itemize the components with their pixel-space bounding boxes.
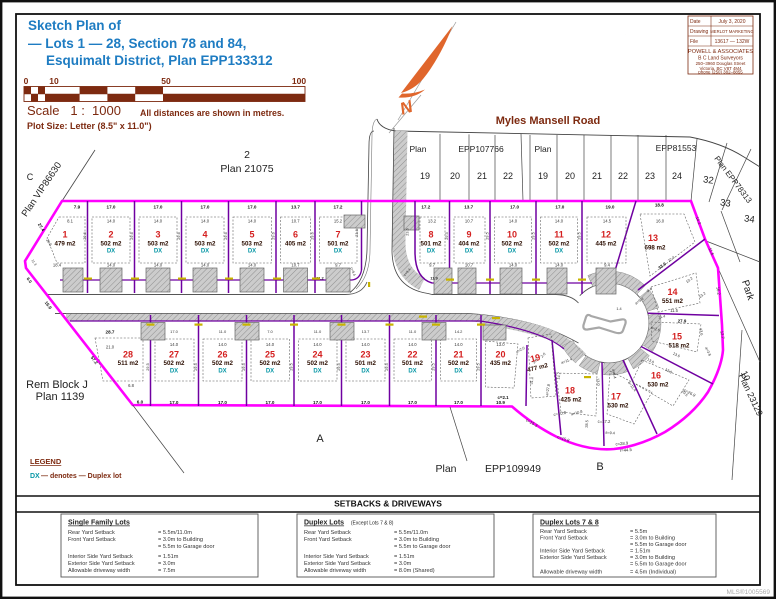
svg-text:14.0: 14.0	[154, 219, 163, 224]
svg-text:Interior Side Yard Setback: Interior Side Yard Setback	[540, 549, 605, 555]
svg-text:29.6: 29.6	[83, 232, 87, 239]
svg-text:— denotes — Duplex lot: — denotes — Duplex lot	[41, 473, 122, 480]
svg-text:Front Yard Setback: Front Yard Setback	[304, 537, 352, 543]
svg-text:17.0: 17.0	[201, 204, 210, 209]
svg-text:501 m2: 501 m2	[328, 240, 350, 247]
svg-text:29.5: 29.5	[445, 232, 449, 239]
svg-text:Exterior Side Yard Setback: Exterior Side Yard Setback	[68, 561, 135, 567]
svg-text:14.0: 14.0	[107, 262, 116, 267]
svg-text:14: 14	[667, 287, 677, 297]
svg-text:— Lots 1 — 28, Section 78 and: — Lots 1 — 28, Section 78 and 84,	[28, 36, 246, 51]
svg-text:DX: DX	[334, 249, 342, 255]
svg-text:23: 23	[360, 350, 370, 360]
svg-text:14.2: 14.2	[455, 329, 464, 334]
svg-text:Esquimalt District, Plan EPP13: Esquimalt District, Plan EPP133312	[46, 53, 273, 68]
svg-text:8: 8	[428, 230, 433, 240]
svg-text:= 1.51m: = 1.51m	[630, 549, 651, 555]
svg-text:= 5.5m to Garage door: = 5.5m to Garage door	[630, 542, 687, 548]
svg-text:29.5: 29.5	[532, 232, 536, 239]
svg-text:Rear Yard Setback: Rear Yard Setback	[68, 530, 115, 536]
svg-text:29.5: 29.5	[290, 363, 294, 370]
svg-text:10.7: 10.7	[465, 219, 474, 224]
svg-text:13.7: 13.7	[291, 204, 300, 209]
svg-text:14.0: 14.0	[509, 219, 518, 224]
svg-text:501 m2: 501 m2	[355, 360, 377, 367]
svg-text:10.9: 10.9	[496, 400, 505, 405]
svg-text:DX: DX	[555, 249, 563, 255]
svg-text:21: 21	[453, 350, 463, 360]
svg-text:= 3.0m to Building: = 3.0m to Building	[630, 555, 675, 561]
svg-text:14.0: 14.0	[509, 262, 518, 267]
svg-text:July 3, 2020: July 3, 2020	[719, 19, 746, 25]
svg-text:= 3.0m: = 3.0m	[394, 561, 412, 567]
svg-text:6: 6	[293, 230, 298, 240]
svg-text:22: 22	[407, 350, 417, 360]
svg-text:Plan: Plan	[534, 144, 551, 154]
svg-text:502 m2: 502 m2	[307, 360, 329, 367]
svg-text:11.0: 11.0	[409, 329, 417, 334]
svg-text:9.4: 9.4	[604, 262, 610, 267]
svg-text:1: 1	[62, 230, 67, 240]
svg-text:DX: DX	[408, 369, 416, 375]
svg-text:21: 21	[477, 171, 487, 181]
svg-text:5: 5	[249, 230, 254, 240]
svg-text:DX: DX	[170, 369, 178, 375]
svg-text:23.6: 23.6	[406, 228, 410, 235]
svg-text:28.7: 28.7	[106, 330, 115, 335]
svg-text:DX: DX	[427, 249, 435, 255]
svg-text:17.0: 17.0	[266, 400, 275, 405]
svg-text:501 m2: 501 m2	[402, 360, 424, 367]
svg-text:6.8: 6.8	[128, 383, 134, 388]
svg-text:29.5: 29.5	[385, 363, 389, 370]
svg-text:14.0: 14.0	[154, 262, 163, 267]
svg-text:c=17.2: c=17.2	[598, 419, 611, 424]
svg-text:B: B	[596, 461, 603, 473]
svg-text:27.9: 27.9	[678, 319, 687, 324]
svg-text:502 m2: 502 m2	[164, 360, 186, 367]
svg-text:502 m2: 502 m2	[502, 240, 524, 247]
svg-text:17.0: 17.0	[170, 329, 179, 334]
svg-text:22: 22	[503, 171, 513, 181]
svg-text:11.0: 11.0	[314, 329, 322, 334]
svg-text:27: 27	[169, 350, 179, 360]
svg-text:29.5: 29.5	[432, 363, 436, 370]
svg-text:530 m2: 530 m2	[648, 382, 670, 389]
svg-text:502 m2: 502 m2	[212, 360, 234, 367]
svg-text:Front Yard Setback: Front Yard Setback	[68, 537, 116, 543]
svg-text:20: 20	[450, 171, 460, 181]
svg-text:15.2: 15.2	[334, 219, 343, 224]
svg-text:DX: DX	[248, 249, 256, 255]
svg-text:= 7.5m: = 7.5m	[158, 568, 176, 574]
svg-text:= 5.5m/11.0m: = 5.5m/11.0m	[158, 530, 192, 536]
svg-text:23: 23	[645, 171, 655, 181]
svg-text:50: 50	[161, 76, 171, 86]
svg-text:17.0: 17.0	[361, 400, 370, 405]
svg-text:1.4: 1.4	[616, 307, 621, 311]
svg-text:503 m2: 503 m2	[148, 240, 170, 247]
svg-text:File: File	[690, 39, 698, 45]
svg-text:17.0: 17.0	[510, 204, 519, 209]
svg-text:Allowable driveway width: Allowable driveway width	[68, 568, 130, 574]
svg-text:10: 10	[507, 230, 517, 240]
svg-text:Rem Block J: Rem Block J	[26, 379, 88, 391]
svg-text:0: 0	[24, 76, 29, 86]
svg-text:17.0: 17.0	[408, 400, 417, 405]
svg-text:10.7: 10.7	[291, 262, 300, 267]
svg-text:503 m2: 503 m2	[242, 240, 264, 247]
svg-text:= 3.0m to Building: = 3.0m to Building	[630, 536, 675, 542]
svg-text:Drawing: Drawing	[690, 29, 709, 35]
svg-text:17.0: 17.0	[170, 400, 179, 405]
svg-text:(Except Lots 7 & 8): (Except Lots 7 & 8)	[351, 521, 394, 527]
svg-text:15: 15	[672, 332, 682, 342]
svg-text:28.5: 28.5	[585, 420, 590, 428]
svg-text:Scale 1 : 1000: Scale 1 : 1000	[27, 103, 121, 118]
svg-text:17.0: 17.0	[107, 204, 116, 209]
svg-text:Date: Date	[690, 19, 701, 25]
svg-text:6.0: 6.0	[137, 400, 144, 405]
svg-text:17.0: 17.0	[454, 400, 463, 405]
svg-text:= 3.0m to Building: = 3.0m to Building	[394, 537, 439, 543]
svg-text:14.0: 14.0	[107, 219, 116, 224]
svg-text:20: 20	[495, 350, 505, 360]
svg-text:29.5: 29.5	[486, 232, 490, 239]
svg-text:404 m2: 404 m2	[459, 240, 481, 247]
svg-text:14.0: 14.0	[266, 342, 275, 347]
svg-text:33: 33	[719, 197, 731, 209]
svg-text:13.7: 13.7	[362, 329, 371, 334]
svg-text:22: 22	[618, 171, 628, 181]
svg-text:17.2: 17.2	[334, 204, 343, 209]
svg-text:= 5.5m: = 5.5m	[630, 529, 648, 535]
svg-text:2: 2	[244, 149, 250, 161]
svg-text:530 m2: 530 m2	[608, 403, 630, 410]
svg-text:29.5: 29.5	[578, 232, 582, 239]
svg-text:29.5: 29.5	[242, 363, 246, 370]
svg-text:10: 10	[49, 76, 59, 86]
svg-text:Plan 21075: Plan 21075	[220, 163, 273, 175]
svg-text:100: 100	[292, 76, 306, 86]
svg-text:29.6: 29.6	[224, 232, 228, 239]
svg-text:435 m2: 435 m2	[490, 360, 512, 367]
svg-text:34: 34	[743, 213, 755, 225]
svg-text:13.2: 13.2	[428, 219, 437, 224]
svg-text:c=2.1: c=2.1	[497, 395, 509, 400]
svg-text:14.0: 14.0	[201, 262, 210, 267]
svg-text:3: 3	[155, 230, 160, 240]
svg-text:502 m2: 502 m2	[448, 360, 470, 367]
svg-text:16: 16	[651, 371, 661, 381]
svg-text:17: 17	[611, 392, 621, 402]
svg-text:511 m2: 511 m2	[118, 360, 139, 367]
svg-text:29.5: 29.5	[146, 363, 150, 370]
svg-text:479 m2: 479 m2	[55, 240, 77, 247]
svg-text:9: 9	[466, 230, 471, 240]
svg-text:405 m2: 405 m2	[285, 240, 307, 247]
svg-text:20: 20	[565, 171, 575, 181]
svg-text:29.5: 29.5	[477, 363, 481, 370]
svg-text:14.0: 14.0	[408, 342, 417, 347]
svg-text:29.6: 29.6	[272, 232, 276, 239]
svg-text:DX: DX	[154, 249, 162, 255]
svg-text:Plan 1139: Plan 1139	[36, 391, 85, 403]
svg-text:29.6: 29.6	[177, 232, 181, 239]
svg-text:DX: DX	[266, 369, 274, 375]
svg-text:501 m2: 501 m2	[421, 240, 443, 247]
svg-text:DX: DX	[465, 249, 473, 255]
svg-text:Plan: Plan	[409, 144, 426, 154]
svg-text:18.4: 18.4	[53, 262, 62, 267]
svg-text:All distances are shown in met: All distances are shown in metres.	[140, 108, 284, 118]
svg-text:18: 18	[565, 386, 575, 396]
svg-text:551 m2: 551 m2	[662, 298, 684, 305]
svg-text:29.6: 29.6	[130, 232, 134, 239]
svg-text:Front Yard Setback: Front Yard Setback	[540, 536, 588, 542]
svg-text:DX: DX	[313, 369, 321, 375]
svg-text:7: 7	[335, 230, 340, 240]
svg-text:Rear Yard Setback: Rear Yard Setback	[540, 529, 587, 535]
svg-text:LEGEND: LEGEND	[30, 457, 62, 466]
svg-text:19: 19	[420, 171, 430, 181]
svg-text:= 1.51m: = 1.51m	[158, 554, 179, 560]
svg-text:29.5: 29.5	[337, 363, 341, 370]
svg-text:= 5.5m to Garage door: = 5.5m to Garage door	[394, 544, 451, 550]
svg-text:14.5: 14.5	[603, 219, 612, 224]
svg-text:503 m2: 503 m2	[195, 240, 217, 247]
svg-text:Duplex Lots: Duplex Lots	[304, 520, 344, 527]
svg-text:a=9.4: a=9.4	[605, 431, 615, 436]
svg-text:Exterior Side Yard Setback: Exterior Side Yard Setback	[540, 555, 607, 561]
svg-text:Plan: Plan	[435, 463, 456, 475]
svg-text:29.6: 29.6	[311, 232, 315, 239]
svg-text:POWELL & ASSOCIATES: POWELL & ASSOCIATES	[688, 49, 753, 55]
svg-text:= 5.5m to Garage door: = 5.5m to Garage door	[158, 544, 215, 550]
svg-text:phone (250) 382–8855: phone (250) 382–8855	[698, 70, 743, 75]
svg-text:21.0: 21.0	[106, 345, 115, 350]
svg-text:EPP109949: EPP109949	[485, 463, 541, 475]
svg-text:DX: DX	[361, 369, 369, 375]
svg-text:13.7: 13.7	[464, 204, 473, 209]
svg-text:13: 13	[648, 233, 658, 243]
svg-text:= 5.5m to Garage door: = 5.5m to Garage door	[630, 562, 687, 568]
svg-text:26: 26	[217, 350, 227, 360]
svg-text:Myles Mansell Road: Myles Mansell Road	[496, 115, 601, 127]
svg-text:EPP81553: EPP81553	[656, 143, 697, 153]
svg-text:17.0: 17.0	[555, 204, 564, 209]
svg-text:MLS®1005569: MLS®1005569	[727, 588, 771, 596]
svg-text:502 m2: 502 m2	[101, 240, 123, 247]
svg-text:16.0: 16.0	[656, 219, 665, 224]
svg-text:= 3.0m to Building: = 3.0m to Building	[158, 537, 203, 543]
svg-text:= 1.51m: = 1.51m	[394, 554, 415, 560]
svg-text:17.0: 17.0	[248, 204, 257, 209]
svg-text:SETBACKS & DRIVEWAYS: SETBACKS & DRIVEWAYS	[334, 499, 442, 509]
svg-text:24: 24	[672, 171, 682, 181]
svg-text:14.0: 14.0	[218, 342, 227, 347]
svg-text:25: 25	[265, 350, 275, 360]
svg-text:32: 32	[702, 174, 714, 186]
svg-text:C: C	[27, 172, 34, 182]
svg-text:Exterior Side Yard Setback: Exterior Side Yard Setback	[304, 561, 371, 567]
svg-text:11.0: 11.0	[219, 329, 227, 334]
svg-text:10.7: 10.7	[291, 219, 300, 224]
svg-text:8.1: 8.1	[67, 219, 73, 224]
svg-text:Duplex Lots 7 & 8: Duplex Lots 7 & 8	[540, 520, 599, 527]
svg-text:DX: DX	[30, 473, 40, 480]
svg-text:9.7: 9.7	[335, 262, 341, 267]
svg-text:19: 19	[538, 171, 548, 181]
svg-text:17.0: 17.0	[313, 400, 322, 405]
svg-text:445 m2: 445 m2	[596, 240, 618, 247]
svg-text:= 5.5m/11.0m: = 5.5m/11.0m	[394, 530, 428, 536]
svg-text:DX: DX	[218, 369, 226, 375]
svg-text:4: 4	[202, 230, 207, 240]
svg-text:14.0: 14.0	[555, 262, 564, 267]
svg-text:11.5: 11.5	[670, 308, 679, 313]
svg-text:7.0: 7.0	[267, 329, 273, 334]
svg-text:425 m2: 425 m2	[561, 397, 583, 404]
svg-text:Allowable driveway width: Allowable driveway width	[304, 568, 366, 574]
svg-text:MERLOT MARKETING: MERLOT MARKETING	[710, 29, 753, 34]
svg-text:502 m2: 502 m2	[549, 240, 571, 247]
svg-text:23.6: 23.6	[355, 229, 359, 236]
svg-text:14.0: 14.0	[170, 342, 179, 347]
svg-text:EPP107766: EPP107766	[458, 144, 504, 154]
svg-text:DX: DX	[508, 249, 516, 255]
svg-text:29.5: 29.5	[194, 363, 198, 370]
svg-text:14.0: 14.0	[313, 342, 322, 347]
svg-text:Rear Yard Setback: Rear Yard Setback	[304, 530, 351, 536]
svg-text:17.0: 17.0	[154, 204, 163, 209]
svg-text:Allowable driveway width: Allowable driveway width	[540, 570, 602, 576]
svg-text:12: 12	[601, 230, 611, 240]
svg-text:9.7: 9.7	[429, 262, 435, 267]
svg-text:Plot Size: Letter (8.5" x 11.0: Plot Size: Letter (8.5" x 11.0")	[27, 121, 152, 131]
svg-text:11.9: 11.9	[430, 276, 438, 281]
svg-text:19.0: 19.0	[606, 204, 615, 209]
svg-text:14.0: 14.0	[201, 219, 210, 224]
svg-text:21: 21	[592, 171, 602, 181]
svg-text:17.0: 17.0	[218, 400, 227, 405]
svg-text:Interior Side Yard Setback: Interior Side Yard Setback	[68, 554, 133, 560]
svg-text:14.0: 14.0	[248, 262, 257, 267]
svg-text:18.8: 18.8	[655, 202, 664, 207]
svg-text:10.7: 10.7	[465, 262, 474, 267]
svg-text:14.0: 14.0	[454, 342, 463, 347]
svg-text:13.0: 13.0	[496, 342, 505, 347]
svg-text:28: 28	[123, 350, 133, 360]
svg-text:DX: DX	[107, 249, 115, 255]
svg-text:17.2: 17.2	[421, 204, 430, 209]
svg-text:= 3.0m: = 3.0m	[158, 561, 176, 567]
svg-text:14.0: 14.0	[555, 219, 564, 224]
svg-text:502 m2: 502 m2	[260, 360, 282, 367]
svg-text:518 m2: 518 m2	[669, 343, 691, 350]
svg-text:Sketch Plan of: Sketch Plan of	[28, 18, 122, 33]
svg-text:24: 24	[312, 350, 322, 360]
svg-text:13617 — 132W: 13617 — 132W	[715, 39, 750, 45]
svg-text:DX: DX	[201, 249, 209, 255]
svg-text:13.0: 13.0	[596, 378, 601, 386]
svg-text:11: 11	[554, 230, 564, 240]
svg-text:14.0: 14.0	[361, 342, 370, 347]
svg-text:Interior Side Yard Setback: Interior Side Yard Setback	[304, 554, 369, 560]
svg-text:= 8.0m (Shared): = 8.0m (Shared)	[394, 568, 435, 574]
svg-text:14.0: 14.0	[248, 219, 257, 224]
svg-text:2: 2	[108, 230, 113, 240]
svg-text:7.9: 7.9	[74, 204, 81, 209]
svg-text:Single Family Lots: Single Family Lots	[68, 520, 130, 527]
svg-text:698 m2: 698 m2	[645, 245, 667, 252]
svg-text:= 4.5m (Individual): = 4.5m (Individual)	[630, 570, 676, 576]
svg-text:A: A	[316, 433, 324, 445]
svg-text:DX: DX	[454, 369, 462, 375]
